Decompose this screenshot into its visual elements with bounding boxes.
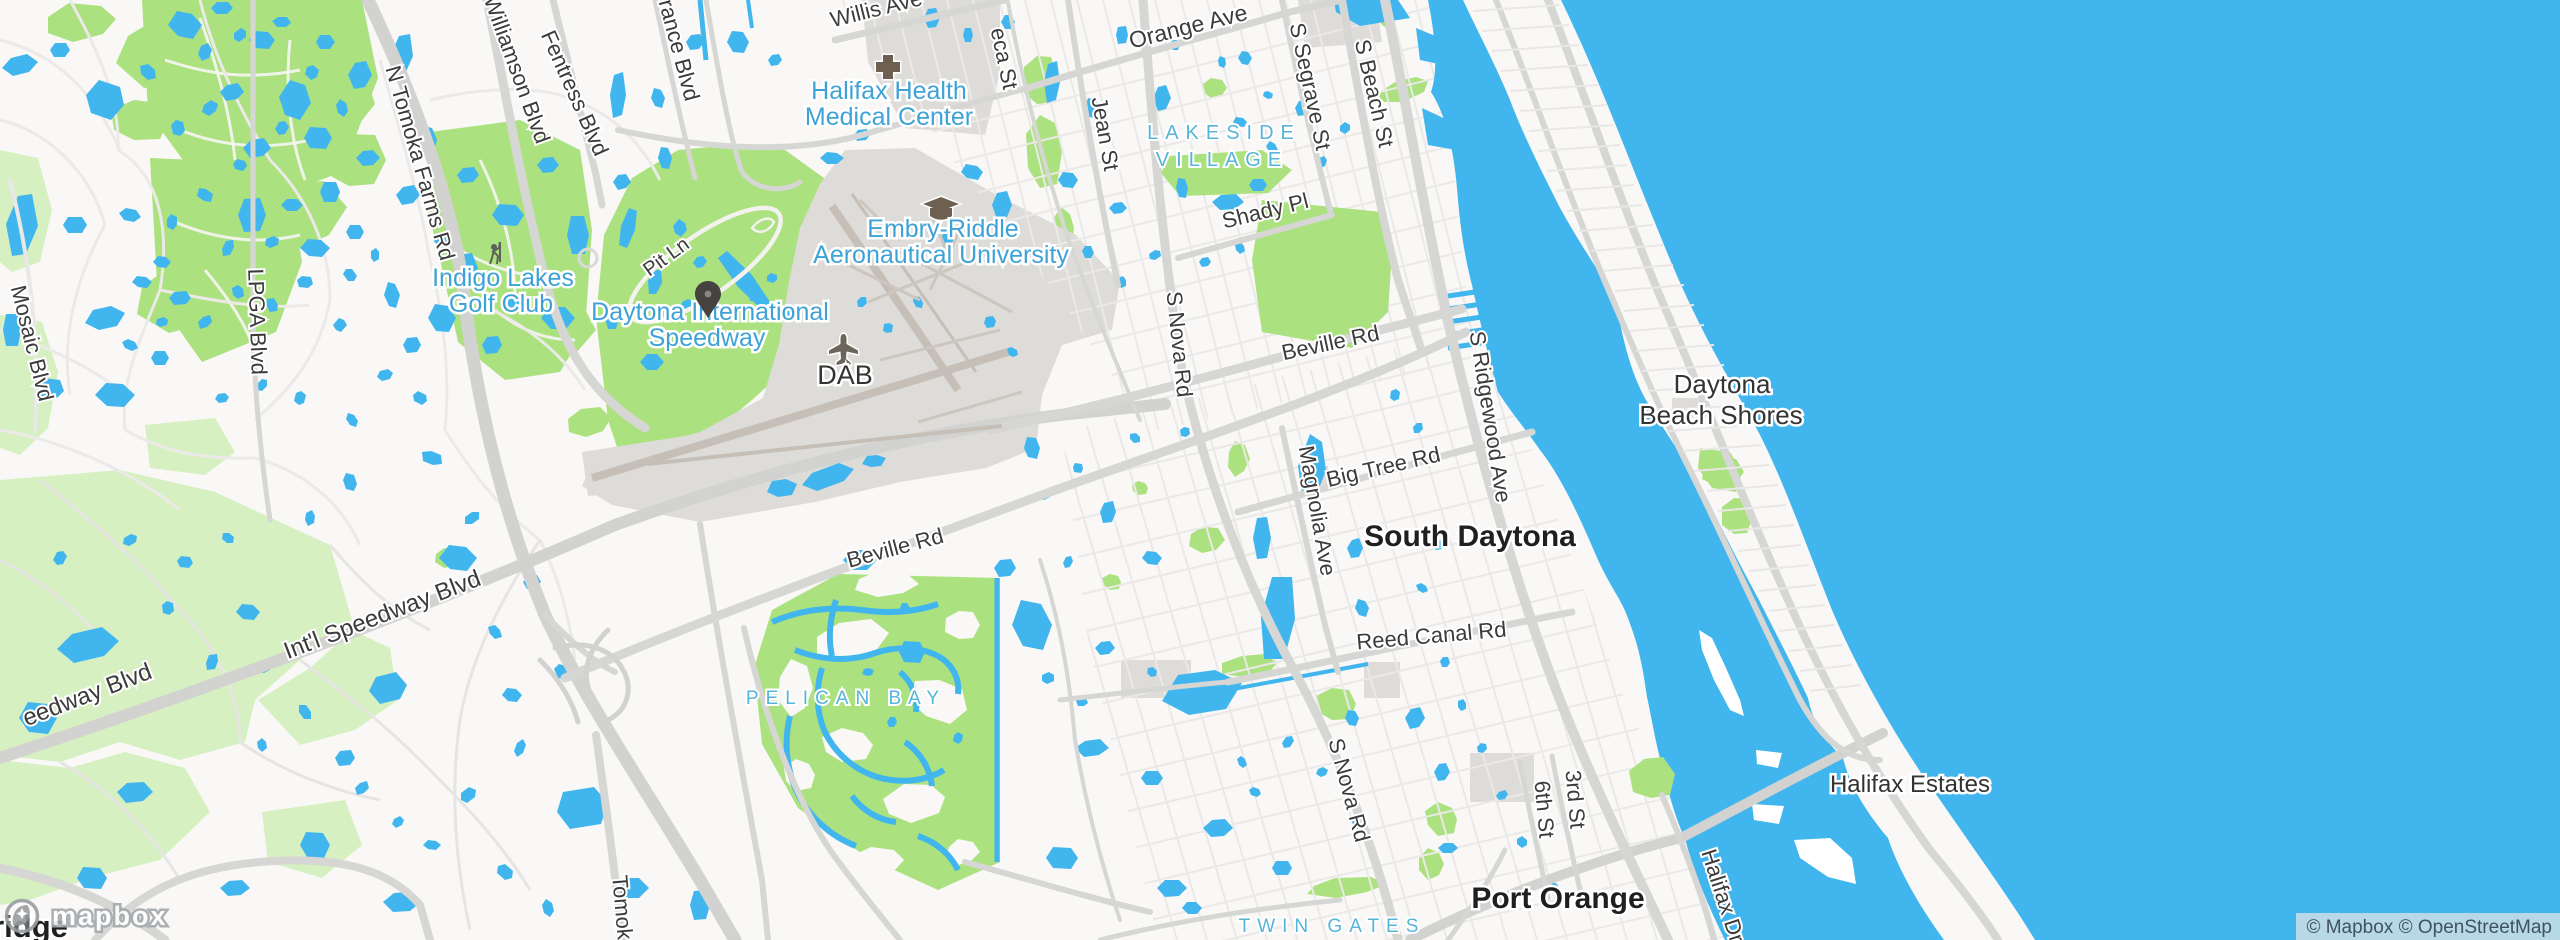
svg-text:Halifax Health: Halifax Health [811,77,967,105]
svg-text:3rd St: 3rd St [1560,769,1590,830]
svg-text:Medical Center: Medical Center [805,103,973,131]
svg-text:South Daytona: South Daytona [1364,520,1576,553]
svg-text:Daytona: Daytona [1674,369,1771,399]
svg-text:Speedway: Speedway [649,324,766,352]
svg-text:Beach Shores: Beach Shores [1639,400,1802,430]
svg-text:mapbox: mapbox [52,901,168,931]
svg-text:Embry-Riddle: Embry-Riddle [867,215,1018,243]
svg-text:Halifax Estates: Halifax Estates [1830,771,1990,798]
svg-text:LPGA Blvd: LPGA Blvd [243,268,272,375]
svg-text:© Mapbox © OpenStreetMap: © Mapbox © OpenStreetMap [2306,917,2552,938]
svg-text:DAB: DAB [817,360,873,390]
svg-text:PELICAN BAY: PELICAN BAY [746,688,946,709]
svg-text:VILLAGE: VILLAGE [1156,149,1288,171]
svg-text:Aeronautical University: Aeronautical University [813,241,1069,269]
svg-text:Golf Club: Golf Club [449,290,553,318]
svg-text:TWIN GATES: TWIN GATES [1239,916,1426,937]
svg-text:Port Orange: Port Orange [1471,882,1644,915]
svg-text:LAKESIDE: LAKESIDE [1147,122,1301,144]
svg-text:Indigo Lakes: Indigo Lakes [432,264,574,292]
svg-text:6th St: 6th St [1530,780,1560,839]
